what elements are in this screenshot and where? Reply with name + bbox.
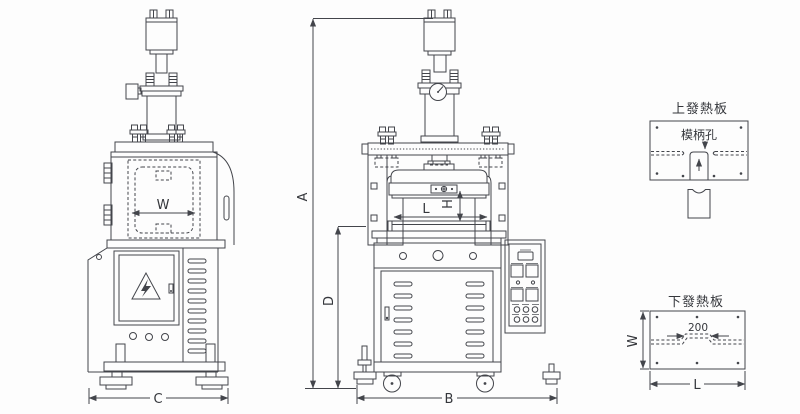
dim-200-label: 200 bbox=[688, 322, 708, 334]
timer-controller[interactable] bbox=[511, 289, 523, 301]
panel-button[interactable] bbox=[523, 317, 529, 323]
dim-l-label: L bbox=[422, 202, 430, 217]
upper-platen bbox=[389, 161, 489, 198]
press-head: L H bbox=[362, 127, 514, 245]
side-knob bbox=[126, 84, 138, 99]
electrical-cabinet-door bbox=[114, 251, 179, 325]
lower-plate-title: 下發熱板 bbox=[668, 295, 724, 310]
dim-w-label: W bbox=[157, 198, 170, 213]
mold-handle-piece bbox=[688, 190, 710, 219]
power-switch[interactable] bbox=[518, 252, 533, 260]
dim-w-label: W bbox=[626, 334, 641, 347]
dimension-l: L bbox=[650, 371, 745, 393]
press-head: W bbox=[104, 125, 234, 248]
caster-wheel bbox=[477, 372, 495, 392]
leveling-foot bbox=[100, 371, 132, 389]
technical-drawing: W bbox=[0, 0, 800, 414]
temp-controller[interactable] bbox=[526, 265, 538, 277]
hydraulic-cylinder bbox=[418, 10, 461, 142]
panel-button[interactable] bbox=[514, 307, 520, 313]
caster-wheel bbox=[384, 372, 402, 392]
ventilation-slats bbox=[188, 259, 206, 353]
pressure-gauge bbox=[430, 84, 447, 101]
heater-channel bbox=[651, 334, 744, 344]
dimension-c: C bbox=[89, 388, 228, 407]
hydraulic-cylinder bbox=[126, 10, 183, 140]
dimension-b: B bbox=[357, 385, 557, 407]
dim-a-label: A bbox=[296, 192, 311, 201]
lightning-bolt-icon bbox=[141, 279, 151, 297]
side-view: A D bbox=[296, 10, 560, 407]
upper-plate-title: 上發熱板 bbox=[672, 102, 728, 117]
panel-button[interactable] bbox=[532, 307, 538, 313]
mold-handle-hole-label: 模柄孔 bbox=[681, 128, 717, 142]
cabinet-door bbox=[381, 271, 493, 362]
leveling-foot bbox=[354, 346, 376, 384]
dim-d-label: D bbox=[322, 296, 337, 306]
temp-controller[interactable] bbox=[511, 265, 523, 277]
dim-b-label: B bbox=[445, 392, 454, 407]
timer-controller[interactable] bbox=[526, 289, 538, 301]
dim-l-label: L bbox=[693, 378, 701, 393]
lower-plate-diagram: 下發熱板 200 W L bbox=[626, 295, 745, 393]
leveling-foot bbox=[196, 371, 228, 389]
control-panel bbox=[505, 240, 545, 333]
base-cabinet bbox=[88, 248, 228, 389]
panel-button[interactable] bbox=[523, 307, 529, 313]
upper-plate-diagram: 上發熱板 模柄孔 bbox=[650, 102, 748, 218]
dimension-w: W bbox=[626, 311, 649, 369]
dimension-200: 200 bbox=[667, 322, 729, 336]
side-slot bbox=[224, 196, 229, 220]
ventilation-slats bbox=[394, 282, 484, 358]
drawing-canvas: W bbox=[0, 0, 800, 414]
leveling-foot bbox=[543, 364, 560, 384]
dimension-d: D bbox=[322, 227, 366, 389]
panel-button[interactable] bbox=[532, 317, 538, 323]
dimension-a: A bbox=[296, 19, 433, 389]
panel-button[interactable] bbox=[514, 317, 520, 323]
dim-c-label: C bbox=[153, 392, 162, 407]
dim-h-label: H bbox=[441, 199, 456, 209]
front-view: W bbox=[88, 10, 234, 407]
